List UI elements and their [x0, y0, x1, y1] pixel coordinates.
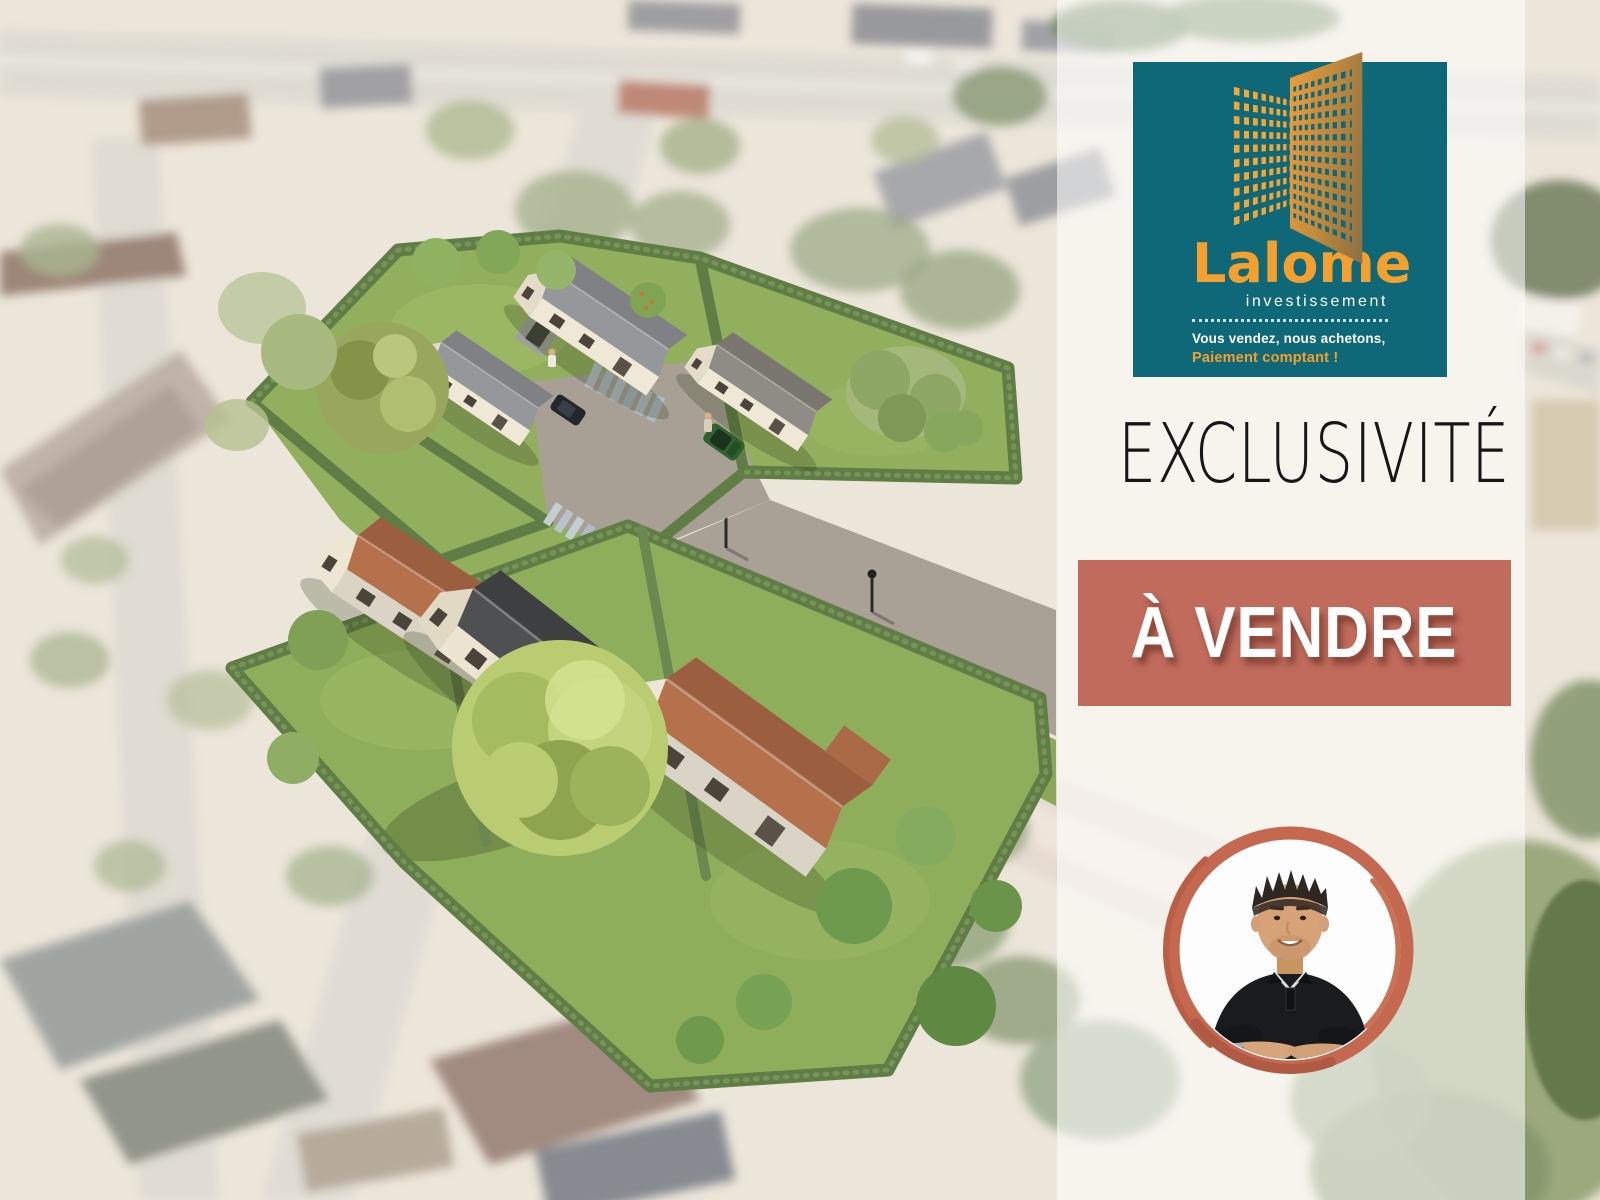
dotted-divider [1192, 319, 1388, 322]
brand-card: Lalome investissement Vous vendez, nous … [1133, 62, 1447, 377]
person [548, 349, 556, 368]
agent-photo [1140, 800, 1440, 1100]
for-sale-banner: À VENDRE [1078, 560, 1511, 706]
exclusivity-headline: EXCLUSIVITÉ [1118, 414, 1464, 496]
brand-subtitle: investissement [1192, 293, 1388, 311]
building-right-face [1290, 52, 1362, 264]
tagline-line2: Paiement comptant ! [1192, 350, 1388, 366]
person [704, 413, 712, 433]
for-sale-label: À VENDRE [1131, 592, 1458, 674]
building-icon [1192, 78, 1388, 228]
tagline-line1: Vous vendez, nous achetons, [1192, 331, 1388, 346]
building-left-face [1234, 87, 1290, 227]
big-tree [452, 640, 668, 856]
real-estate-flyer: Lalome investissement Vous vendez, nous … [0, 0, 1600, 1200]
